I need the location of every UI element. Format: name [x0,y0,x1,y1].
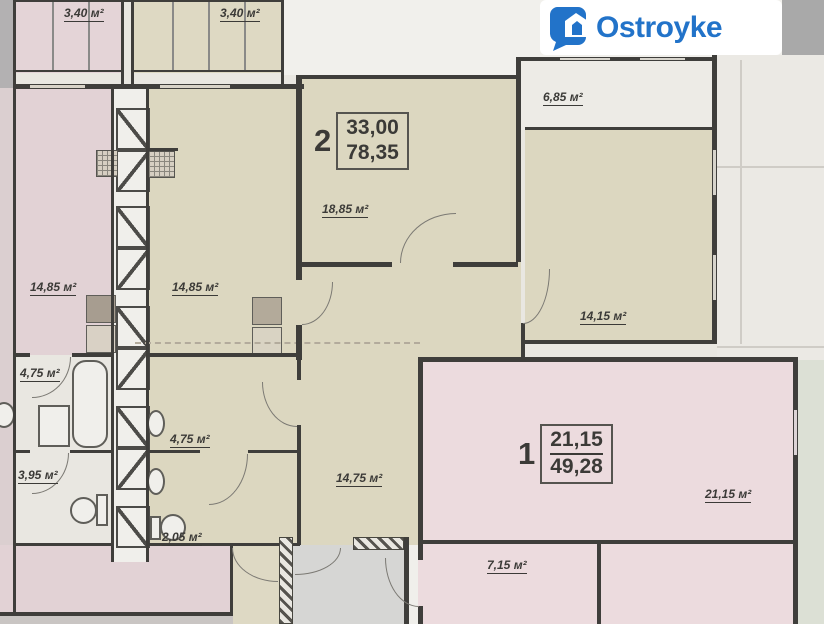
duct-shaft-segment [116,248,150,290]
bathtub [72,360,108,448]
ostroyke-logo-icon [548,5,588,51]
window [560,58,610,60]
dashed-boundary [135,342,420,344]
apartment-2-total-area: 78,35 [346,141,399,166]
apartment-2-label: 2 33,00 78,35 [314,112,409,170]
wall [149,450,200,453]
wall [14,70,121,72]
room-label-bath-mid: 4,75 м² [170,432,210,448]
wall [121,0,124,86]
room-label-bath-left: 4,75 м² [20,366,60,382]
wall [131,0,134,86]
wall [525,340,717,344]
room-label-hall: 14,75 м² [336,471,382,487]
wall [418,606,423,624]
room-label-apt1-room: 21,15 м² [705,487,751,503]
wall [14,543,111,546]
apartment1-room2 [418,544,795,624]
duct-shaft-segment [116,150,150,192]
wall [296,75,302,280]
room-label-balcony-left: 3,40 м² [64,6,104,22]
wall [248,450,300,453]
wall [453,262,518,267]
balcony-divider [52,2,54,71]
ostroyke-logo: Ostroyke [540,0,782,55]
apartment-1-area-box: 21,15 49,28 [540,424,613,484]
background [0,0,14,88]
room-label-wc-left: 3,95 м² [18,468,58,484]
background [717,55,824,360]
wall [134,70,281,72]
duct-shaft-segment [116,406,150,448]
wall [300,262,392,267]
room-label-room-left: 14,85 м² [30,280,76,296]
wall [793,544,798,624]
wall [14,450,30,453]
kitchen-unit [252,327,282,355]
sink [147,468,165,495]
kitchen-unit [252,297,282,325]
window [30,85,85,88]
wall [516,57,521,262]
window [160,85,230,88]
apartment-2-area-box: 33,00 78,35 [336,112,409,170]
balcony-divider [208,2,210,71]
ostroyke-logo-text: Ostroyke [596,11,722,45]
wall [111,88,114,562]
wall [146,88,149,562]
wall [521,323,525,360]
window [713,150,716,195]
room-label-balcony-mid: 3,40 м² [220,6,260,22]
wall [146,148,178,151]
apartment-1-total-area: 49,28 [550,455,603,480]
room-label-room-right: 14,15 м² [580,309,626,325]
duct-shaft-segment [116,108,150,150]
room-label-apt1-room2: 7,15 м² [487,558,527,574]
wall [418,540,797,544]
background [798,360,824,624]
wall [525,127,716,130]
apartment-1-label: 1 21,15 49,28 [518,424,613,484]
toilet [96,494,108,526]
hatched-wall [353,537,404,550]
apartment-2-living-area: 33,00 [346,116,399,141]
wall [300,75,518,79]
wall [281,0,284,86]
vent-grille [148,151,175,178]
apartment-1-number: 1 [518,436,535,472]
background [782,0,824,62]
background [0,88,14,615]
wall [13,0,16,615]
wall [597,544,601,624]
wall [14,353,30,357]
wall [149,353,300,357]
building-outline [717,166,824,168]
building-outline [740,60,742,344]
wall [0,612,233,616]
duct-shaft-segment [116,448,150,490]
vent-grille [96,150,118,177]
wall [297,425,301,545]
room-label-room-mid: 14,85 м² [172,280,218,296]
duct-shaft-segment [116,506,150,548]
duct-shaft-segment [116,348,150,390]
window [713,255,716,300]
toilet [70,497,97,524]
wall [521,57,716,61]
floor-plan: 3,40 м² 3,40 м² 14,85 м² 14,85 м² 18,85 … [0,0,824,624]
building-outline [717,346,824,348]
window [794,410,797,455]
balcony-divider [172,2,174,71]
room-label-wc-mid: 2,05 м² [162,530,202,546]
room-label-room-top: 18,85 м² [322,202,368,218]
washing-machine [38,405,70,447]
wall [14,0,282,2]
duct-shaft-segment [116,206,150,248]
sink [147,410,165,437]
window [640,58,685,60]
wall [418,357,423,545]
wall [297,357,301,380]
room-label-room-top-right: 6,85 м² [543,90,583,106]
apartment-1-living-area: 21,15 [550,428,603,455]
hatched-wall [279,537,293,624]
wall [418,357,795,362]
wall [72,353,111,357]
wall [70,450,111,453]
wall [712,55,717,344]
apartment-2-number: 2 [314,123,331,159]
